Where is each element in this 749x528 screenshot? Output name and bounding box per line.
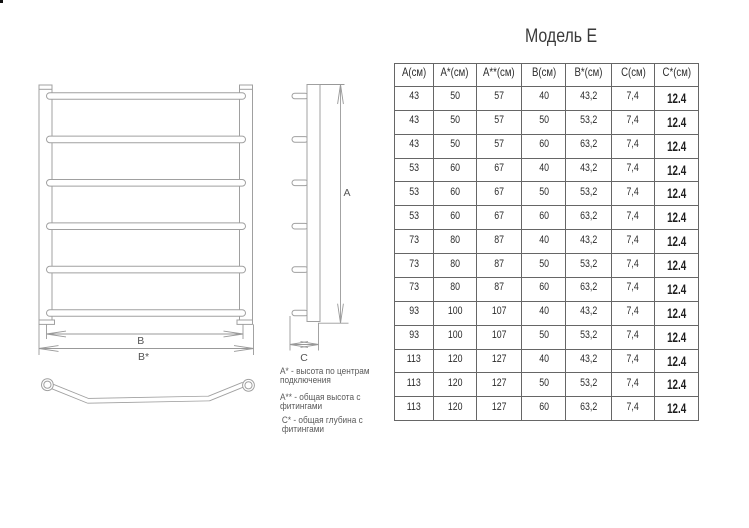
svg-text:B: B xyxy=(137,335,144,347)
svg-text:A: A xyxy=(344,187,351,199)
svg-text:B*: B* xyxy=(138,351,149,363)
svg-text:C: C xyxy=(300,352,308,364)
